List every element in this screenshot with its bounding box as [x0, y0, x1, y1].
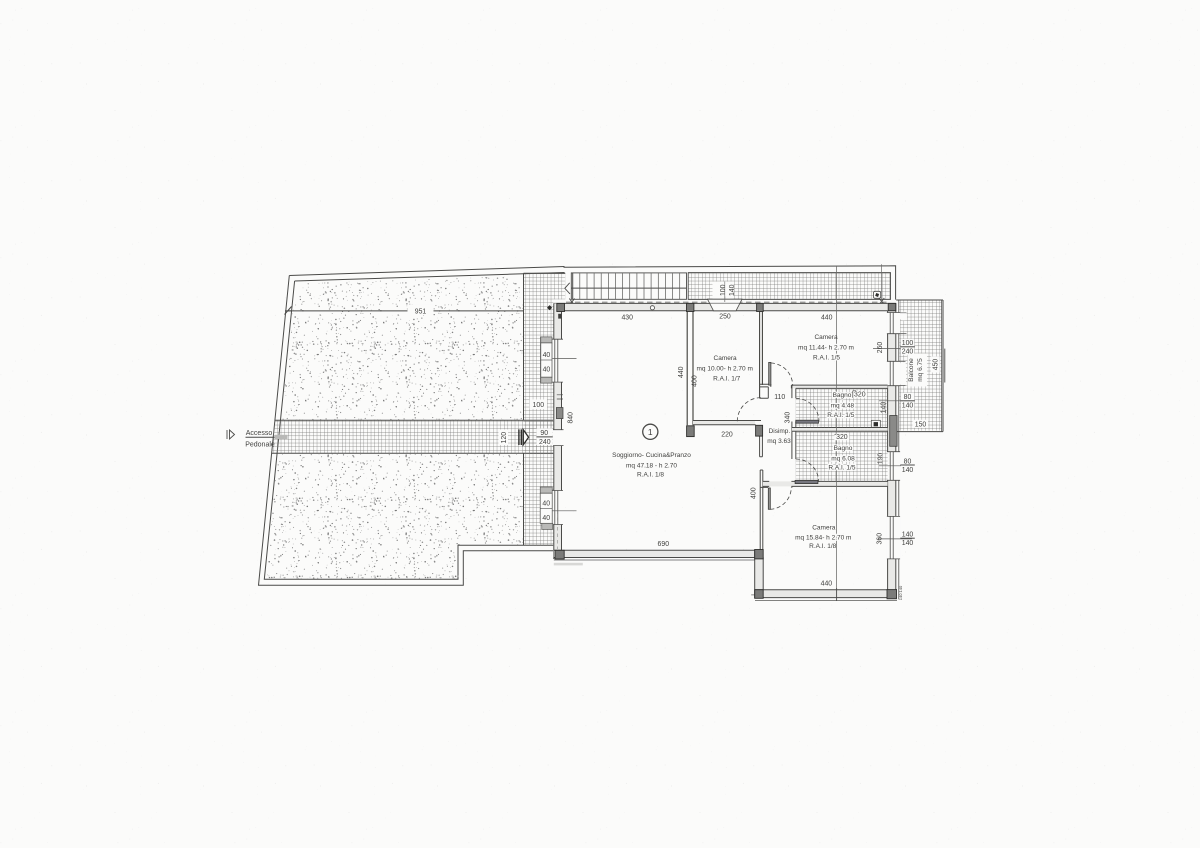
svg-text:mq 10.00- h 2.70 m: mq 10.00- h 2.70 m	[697, 366, 753, 373]
svg-text:440: 440	[678, 366, 685, 378]
svg-text:mq 15.84- h 2.70 m: mq 15.84- h 2.70 m	[795, 535, 851, 542]
svg-text:Balcone: Balcone	[908, 358, 915, 382]
svg-text:140: 140	[902, 532, 914, 539]
svg-text:Camera: Camera	[812, 525, 836, 532]
svg-text:150: 150	[915, 421, 927, 428]
svg-text:mq 6.08: mq 6.08	[831, 455, 855, 462]
svg-text:90: 90	[540, 430, 548, 437]
svg-text:400: 400	[750, 487, 757, 499]
svg-text:320: 320	[836, 434, 848, 441]
svg-text:110: 110	[774, 394, 785, 401]
svg-text:951: 951	[415, 309, 427, 316]
svg-text:440: 440	[821, 580, 833, 587]
svg-text:Accesso: Accesso	[246, 430, 273, 437]
svg-text:40: 40	[543, 352, 551, 359]
svg-text:340: 340	[785, 412, 792, 424]
svg-text:80: 80	[904, 394, 912, 401]
svg-text:100: 100	[533, 402, 545, 409]
svg-text:140 140: 140 140	[898, 585, 903, 600]
svg-text:120: 120	[501, 432, 508, 444]
svg-text:690: 690	[658, 541, 670, 548]
svg-text:40: 40	[543, 367, 551, 374]
svg-text:140: 140	[902, 540, 914, 547]
svg-text:140: 140	[902, 403, 914, 410]
svg-text:440: 440	[821, 314, 833, 321]
svg-text:250: 250	[719, 314, 731, 321]
svg-text:Camera: Camera	[714, 355, 738, 362]
svg-text:100: 100	[720, 284, 727, 296]
svg-text:360: 360	[877, 533, 884, 545]
svg-text:400: 400	[691, 375, 698, 387]
svg-text:260: 260	[877, 342, 884, 354]
svg-text:R.A.I. 1/5: R.A.I. 1/5	[828, 465, 855, 472]
svg-text:mq 6.75: mq 6.75	[917, 358, 924, 382]
svg-text:R.A.I. 1/7: R.A.I. 1/7	[713, 376, 740, 383]
svg-text:mq 3.63: mq 3.63	[767, 438, 791, 445]
svg-text:mq 47.18 - h 2.70: mq 47.18 - h 2.70	[626, 462, 677, 469]
svg-text:Soggiorno- Cucina&Pranzo: Soggiorno- Cucina&Pranzo	[612, 452, 691, 459]
svg-text:Camera: Camera	[814, 334, 838, 341]
svg-text:40: 40	[542, 515, 550, 522]
svg-text:140: 140	[902, 467, 914, 474]
svg-text:R.A.I. 1/5: R.A.I. 1/5	[827, 412, 854, 419]
svg-text:Disimp.: Disimp.	[769, 428, 791, 435]
svg-text:mq 11.44- h 2.70 m: mq 11.44- h 2.70 m	[798, 345, 854, 352]
svg-text:Bagno: Bagno	[833, 392, 852, 399]
svg-text:R.A.I. 1/5: R.A.I. 1/5	[813, 354, 840, 361]
svg-text:R.A.I. 1/8: R.A.I. 1/8	[637, 472, 664, 479]
svg-text:320: 320	[854, 392, 866, 399]
svg-text:140: 140	[729, 284, 736, 296]
svg-text:R.A.I. 1/8: R.A.I. 1/8	[809, 543, 836, 550]
svg-text:40: 40	[542, 501, 550, 508]
svg-text:Pedonale: Pedonale	[245, 441, 275, 448]
svg-text:mq 4.48: mq 4.48	[831, 403, 855, 410]
svg-text:220: 220	[721, 431, 733, 438]
svg-text:1: 1	[648, 427, 653, 437]
svg-text:840: 840	[568, 412, 575, 424]
svg-text:100: 100	[902, 340, 914, 347]
svg-text:80: 80	[904, 458, 912, 465]
svg-text:240: 240	[902, 349, 914, 356]
svg-text:240: 240	[539, 439, 551, 446]
svg-text:Bagno: Bagno	[834, 445, 853, 452]
svg-text:450: 450	[932, 359, 939, 371]
svg-text:430: 430	[621, 314, 633, 321]
